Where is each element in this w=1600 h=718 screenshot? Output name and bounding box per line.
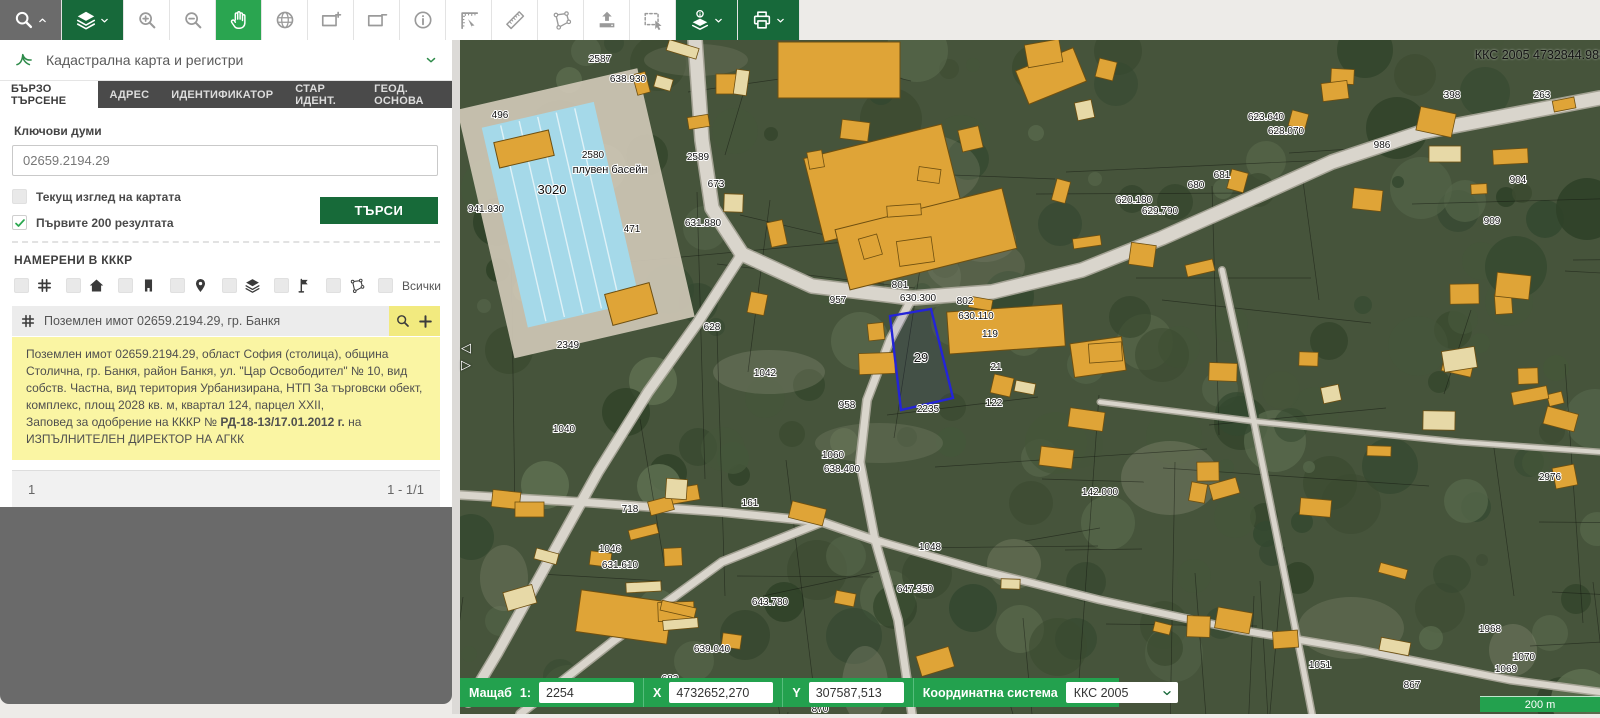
chevron-up-icon [37, 15, 48, 26]
main-toolbar [0, 0, 800, 40]
flag-filter-checkbox[interactable] [274, 278, 289, 293]
map-statusbar: Мащаб 1: X Y Координатна система ККС 200… [460, 678, 1119, 707]
map-label: плувен басейн [573, 164, 648, 176]
grid-icon [20, 313, 36, 329]
map-label: 1051 [1309, 660, 1332, 671]
toolbar-button-print[interactable] [738, 0, 800, 40]
tab-old-ident[interactable]: СТАР ИДЕНТ. [284, 81, 363, 108]
result-title: Поземлен имот 02659.2194.29, гр. Банкя [44, 314, 389, 328]
map-scalebar: 200 m [1480, 696, 1600, 712]
globe-icon [274, 9, 296, 31]
toolbar-button-next-extent[interactable] [354, 0, 400, 40]
map-label: 496 [492, 110, 509, 121]
map-label: 119 [982, 329, 998, 340]
map-label: 631.880 [685, 218, 722, 229]
sidebar-map-divider[interactable] [452, 40, 460, 714]
map-label: 122 [986, 398, 1003, 409]
map-label: 3020 [538, 182, 567, 197]
ruler-icon [504, 9, 526, 31]
map-label: 630.300 [900, 293, 937, 304]
map-label: 263 [1534, 90, 1551, 101]
map-label: 471 [624, 224, 641, 235]
map-label: 643.780 [752, 597, 789, 608]
house-filter-checkbox[interactable] [66, 278, 81, 293]
result-type-filters: Всички [14, 277, 438, 294]
tab-identifier[interactable]: ИДЕНТИФИКАТОР [160, 81, 284, 108]
all-filter-checkbox[interactable] [378, 278, 393, 293]
pin-filter-checkbox[interactable] [170, 278, 185, 293]
toolbar-button-layers[interactable] [62, 0, 124, 40]
polygon-icon [550, 9, 572, 31]
y-segment: Y [783, 678, 913, 707]
layers-icon [244, 277, 261, 294]
map-canvas: 2587638.93049625802589плувен басейн30204… [460, 40, 1600, 714]
extent-add-icon [320, 9, 342, 31]
map-label: 801 [892, 280, 909, 291]
selected-parcel-number: 29 [914, 350, 928, 365]
result-actions [389, 306, 440, 336]
map-label: 957 [830, 295, 847, 306]
map-label: 867 [1404, 680, 1421, 691]
toolbar-button-measure-area[interactable] [446, 0, 492, 40]
map-label: 1070 [1513, 652, 1536, 663]
current-view-checkbox[interactable] [12, 189, 27, 204]
chevron-down-icon [775, 15, 786, 26]
map-label: 680 [1188, 180, 1205, 191]
layers-icon [75, 9, 97, 31]
tab-address[interactable]: АДРЕС [98, 81, 160, 108]
map-label: 1060 [822, 450, 845, 461]
sidebar-empty-area [0, 507, 452, 704]
map-label: 21 [990, 362, 1002, 373]
map-label: 958 [839, 400, 856, 411]
map-label: 2349 [557, 340, 580, 351]
upload-icon [596, 9, 618, 31]
current-view-label: Текущ изглед на картата [36, 190, 181, 204]
zoom-out-icon [182, 9, 204, 31]
print-icon [751, 9, 773, 31]
map-label: 1042 [754, 368, 777, 379]
search-sidebar: Кадастрална карта и регистри БЪРЗО ТЪРСЕ… [0, 40, 452, 704]
result-order-line: Заповед за одобрение на КККР № РД-18-13/… [26, 414, 426, 448]
polygon-filter-checkbox[interactable] [326, 278, 341, 293]
crs-select[interactable]: ККС 2005 [1066, 682, 1178, 703]
cursor-coordinates-readout: ККС 2005 4732844.988 [1475, 48, 1600, 62]
grid-icon [36, 277, 53, 294]
map-label: 2589 [687, 152, 710, 163]
chevron-down-icon[interactable] [424, 53, 438, 67]
map-label: 802 [957, 296, 974, 307]
map-label: 638.400 [824, 464, 861, 475]
map-label: 1968 [1479, 624, 1502, 635]
page-number-button[interactable]: 1 [28, 482, 35, 497]
map-label: 681 [1214, 170, 1231, 181]
quick-search-panel: Ключови думи Текущ изглед на картата Пър… [0, 108, 452, 507]
polygon-icon [348, 277, 365, 294]
house-icon [88, 277, 105, 294]
search-button[interactable]: ТЪРСИ [320, 197, 438, 224]
extent-remove-icon [366, 9, 388, 31]
results-pager: 1 1 - 1/1 [12, 470, 440, 507]
result-details-text: Поземлен имот 02659.2194.29, област Софи… [26, 346, 426, 414]
map-label: 628 [704, 322, 721, 333]
map-label: 638.930 [610, 74, 647, 85]
toolbar-button-zoom-in[interactable] [124, 0, 170, 40]
toolbar-button-info[interactable] [400, 0, 446, 40]
toolbar-button-globe[interactable] [262, 0, 308, 40]
toolbar-button-upload[interactable] [584, 0, 630, 40]
sidebar-collapse-handles: ◁ ▷ [461, 342, 471, 372]
hand-icon [228, 9, 250, 31]
map-label: 986 [1374, 140, 1391, 151]
collapse-left-icon[interactable]: ◁ [461, 342, 471, 355]
layers-filter-checkbox[interactable] [222, 278, 237, 293]
chevron-down-icon [1161, 687, 1173, 699]
result-details: Поземлен имот 02659.2194.29, област Софи… [12, 337, 440, 460]
search-icon [13, 9, 35, 31]
first-200-label: Първите 200 резултата [36, 216, 174, 230]
flag-icon [296, 277, 313, 294]
map-label: 628.070 [1268, 126, 1305, 137]
grid-filter-checkbox[interactable] [14, 278, 29, 293]
toolbar-button-pan[interactable] [216, 0, 262, 40]
toolbar-button-previous-extent[interactable] [308, 0, 354, 40]
map-label: 718 [622, 504, 639, 515]
toolbar-button-measure-polygon[interactable] [538, 0, 584, 40]
map-label: 398 [1444, 90, 1461, 101]
branch-logo-icon [14, 50, 34, 70]
toolbar-button-measure-distance[interactable] [492, 0, 538, 40]
map-label: 2235 [917, 404, 940, 415]
map-label: 620.180 [1116, 195, 1153, 206]
all-filter-label: Всички [402, 279, 441, 293]
layers-info-icon [689, 9, 711, 31]
map-label: 941.930 [468, 204, 505, 215]
map-label: 142.000 [1082, 487, 1119, 498]
map-label: 639.040 [694, 644, 731, 655]
chevron-down-icon [99, 15, 110, 26]
map-label: 2580 [582, 150, 605, 161]
zoom-to-result-icon[interactable] [395, 313, 411, 329]
map-label: 161 [742, 498, 759, 509]
measure-area-icon [458, 9, 480, 31]
map-label: 631.610 [602, 560, 639, 571]
order-number: РД-18-13/17.01.2012 г. [220, 415, 344, 429]
tab-geod-basis[interactable]: ГЕОД. ОСНОВА [363, 81, 452, 108]
map-label: 2587 [589, 54, 612, 65]
first-200-checkbox[interactable] [12, 215, 27, 230]
map-label: 1069 [1495, 664, 1518, 675]
map-label: 2976 [1539, 472, 1562, 483]
building-icon [140, 277, 157, 294]
map-label: 909 [1484, 216, 1501, 227]
keywords-label: Ключови думи [14, 124, 440, 138]
toolbar-button-select-area[interactable] [630, 0, 676, 40]
sidebar-header[interactable]: Кадастрална карта и регистри [0, 40, 452, 81]
chevron-down-icon [713, 15, 724, 26]
x-coordinate-input[interactable] [669, 682, 773, 703]
map-label: 629.790 [1142, 206, 1179, 217]
x-segment: X [644, 678, 783, 707]
map-label: 647.350 [897, 584, 934, 595]
page-info: 1 - 1/1 [387, 482, 424, 497]
search-tabs: БЪРЗО ТЪРСЕНЕАДРЕСИДЕНТИФИКАТОРСТАР ИДЕН… [0, 81, 452, 108]
scale-segment: Мащаб 1: [460, 678, 644, 707]
select-area-icon [642, 9, 664, 31]
map-label: 630.110 [958, 311, 994, 322]
info-icon [412, 9, 434, 31]
toolbar-button-layers-info[interactable] [676, 0, 738, 40]
add-result-icon[interactable] [417, 313, 434, 330]
zoom-in-icon [136, 9, 158, 31]
map-label: 673 [708, 179, 725, 190]
sidebar-title: Кадастрална карта и регистри [46, 52, 412, 68]
map-label: 623.640 [1248, 112, 1285, 123]
map-label: 1040 [553, 424, 576, 435]
result-row[interactable]: Поземлен имот 02659.2194.29, гр. Банкя [12, 306, 440, 336]
keywords-input[interactable] [12, 145, 438, 176]
toolbar-button-search[interactable] [0, 0, 62, 40]
separator [12, 241, 440, 243]
pin-icon [192, 277, 209, 294]
map-label: 904 [1510, 175, 1527, 186]
map-viewport[interactable]: 2587638.93049625802589плувен басейн30204… [460, 40, 1600, 714]
map-label: 1046 [599, 544, 622, 555]
building-filter-checkbox[interactable] [118, 278, 133, 293]
crs-segment: Координатна система ККС 2005 [914, 678, 1187, 707]
expand-right-icon[interactable]: ▷ [461, 359, 471, 372]
map-label: 1048 [919, 542, 942, 553]
y-coordinate-input[interactable] [809, 682, 904, 703]
toolbar-button-zoom-out[interactable] [170, 0, 216, 40]
tab-quick-search[interactable]: БЪРЗО ТЪРСЕНЕ [0, 81, 98, 108]
results-section-title: НАМЕРЕНИ В КККР [14, 253, 440, 267]
scale-input[interactable] [539, 682, 634, 703]
